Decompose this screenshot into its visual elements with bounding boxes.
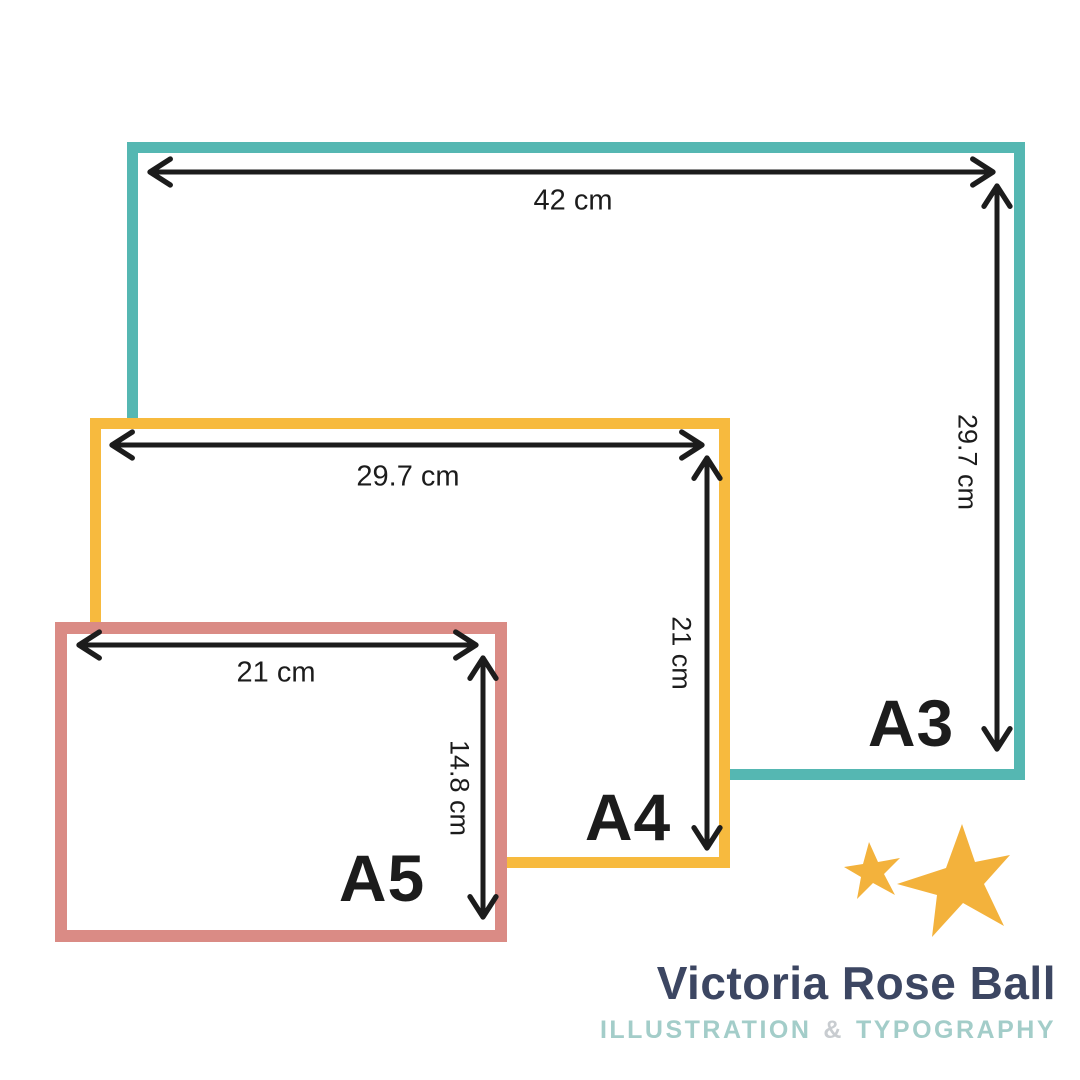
a5-height-label: 14.8 cm — [444, 740, 475, 836]
subtitle-typography: TYPOGRAPHY — [856, 1016, 1056, 1045]
a4-name-label: A4 — [585, 779, 671, 855]
a5-width-label: 21 cm — [237, 657, 316, 690]
a5-name-label: A5 — [339, 840, 425, 916]
subtitle-ampersand: & — [823, 1016, 844, 1045]
a3-name-label: A3 — [868, 685, 954, 761]
a4-height-label: 21 cm — [666, 616, 697, 690]
signature-block: Victoria Rose Ball ILLUSTRATION & TYPOGR… — [600, 956, 1056, 1045]
stars-decoration — [842, 822, 1012, 940]
large-star-icon — [897, 824, 1010, 937]
artist-name: Victoria Rose Ball — [600, 956, 1056, 1010]
subtitle-illustration: ILLUSTRATION — [600, 1016, 811, 1045]
small-star-icon — [844, 842, 900, 899]
a3-width-label: 42 cm — [534, 185, 613, 218]
paper-size-diagram: 42 cm 29.7 cm 29.7 cm 21 cm 21 cm 14.8 c… — [0, 0, 1080, 1080]
a3-height-label: 29.7 cm — [952, 414, 983, 510]
artist-subtitle: ILLUSTRATION & TYPOGRAPHY — [600, 1016, 1056, 1045]
a4-width-label: 29.7 cm — [356, 461, 459, 494]
